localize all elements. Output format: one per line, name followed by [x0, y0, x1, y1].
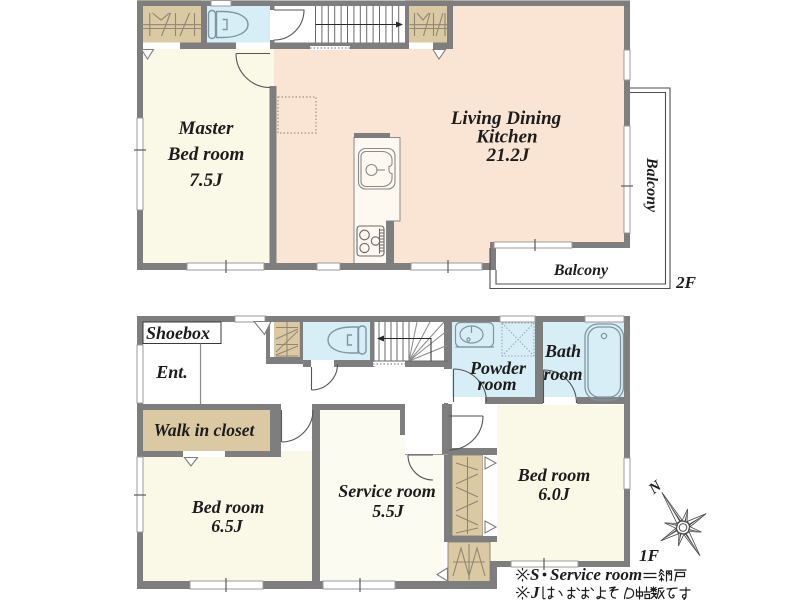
svg-text:room: room — [477, 374, 516, 394]
svg-text:6.0J: 6.0J — [538, 484, 571, 504]
svg-text:Bed room: Bed room — [167, 144, 245, 165]
svg-text:Bed room: Bed room — [191, 497, 265, 517]
svg-text:6.5J: 6.5J — [211, 516, 244, 536]
svg-text:Service room: Service room — [550, 565, 642, 584]
svg-text:Bed room: Bed room — [517, 465, 591, 485]
svg-text:Ent.: Ent. — [155, 362, 188, 382]
svg-text:Balcony: Balcony — [643, 157, 660, 213]
svg-text:room: room — [543, 364, 582, 384]
svg-text:2F: 2F — [675, 273, 697, 292]
svg-text:Master: Master — [178, 118, 235, 139]
svg-text:Balcony: Balcony — [553, 262, 609, 279]
svg-text:1F: 1F — [639, 546, 660, 565]
svg-text:Bath: Bath — [544, 341, 581, 361]
svg-text:J: J — [530, 583, 540, 600]
svg-text:Service room: Service room — [338, 481, 435, 501]
svg-text:S: S — [530, 565, 539, 584]
svg-text:5.5J: 5.5J — [372, 501, 405, 521]
svg-text:7.5J: 7.5J — [189, 170, 223, 191]
svg-text:Walk in closet: Walk in closet — [154, 420, 256, 440]
svg-text:21.2J: 21.2J — [486, 145, 530, 166]
svg-text:Shoebox: Shoebox — [146, 323, 210, 343]
